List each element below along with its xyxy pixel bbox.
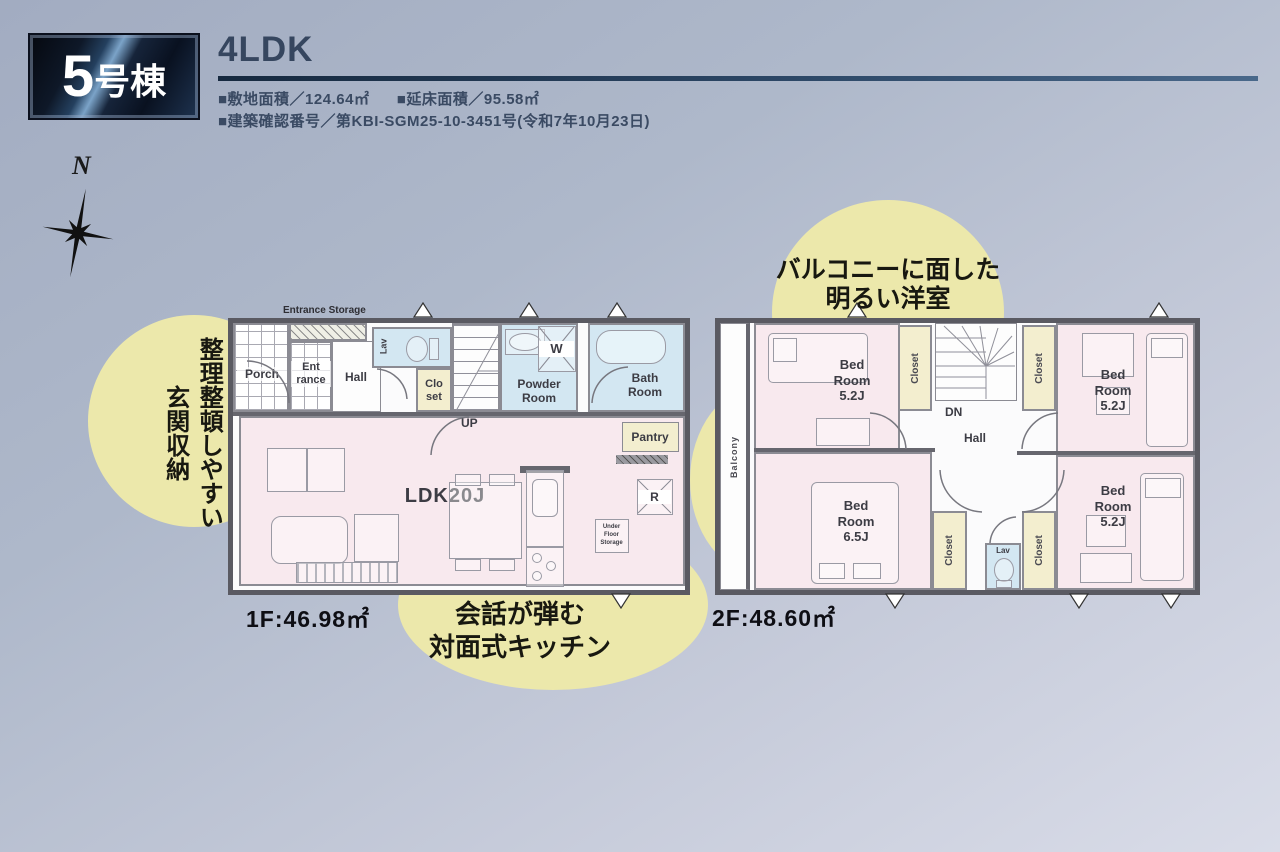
bedroom-3: Bed Room 6.5J <box>754 452 932 590</box>
door-arc-bedroom-2 <box>1020 411 1060 451</box>
entrance-storage-cabinet <box>289 323 367 341</box>
floor1-area-label: 1F:46.98㎡ <box>246 600 370 634</box>
toilet-icon-2f <box>994 558 1014 582</box>
toilet-tank-2f <box>996 580 1012 588</box>
toilet-icon-1f <box>406 336 428 362</box>
compass-icon: N <box>28 148 132 280</box>
stairs-1f <box>452 323 500 412</box>
bedroom-4: Bed Room 5.2J <box>1056 455 1195 590</box>
badge-suffix: 号棟 <box>94 64 166 100</box>
closet-1f: Clo set <box>416 368 452 412</box>
sofa <box>271 516 348 564</box>
section-arrow-icon <box>520 303 538 317</box>
stairs-2f <box>935 323 1017 401</box>
flyer-canvas: 5 号棟 4LDK ■敷地面積／124.64㎡ ■延床面積／95.58㎡ ■建築… <box>0 0 1280 852</box>
section-arrow-icon <box>608 303 626 317</box>
closet-2f-tl: Closet <box>898 325 932 411</box>
desk <box>816 418 870 446</box>
closet-2f-br: Closet <box>1022 511 1056 590</box>
stairs-up-label: UP <box>461 416 478 430</box>
lav-2f-label: Lav <box>987 546 1019 556</box>
hall-2f-label: Hall <box>964 431 986 445</box>
bedroom-2: Bed Room 5.2J <box>1056 323 1195 453</box>
pillow <box>1145 478 1181 498</box>
section-arrow-icon <box>1162 594 1180 608</box>
dining-chair <box>489 559 515 571</box>
spec-line-1: ■敷地面積／124.64㎡ ■延床面積／95.58㎡ <box>218 88 539 109</box>
section-arrow-icon <box>414 303 432 317</box>
powder-room-label: Powder Room <box>502 377 576 406</box>
refrigerator-space: R <box>637 479 673 515</box>
closet-2f-tr: Closet <box>1022 325 1056 411</box>
callout-kitchen: 会話が弾む 対面式キッチン <box>405 598 635 663</box>
pantry-shelf <box>616 455 668 464</box>
door-arc-lav-2f <box>988 515 1018 545</box>
pantry: Pantry <box>622 422 679 452</box>
plan-type-title: 4LDK <box>218 30 313 70</box>
bedroom-1-label: Bed Room 5.2J <box>812 357 892 404</box>
shelf <box>1080 553 1132 583</box>
powder-room: W Powder Room <box>500 323 578 412</box>
pillow <box>853 563 881 579</box>
header-divider <box>218 76 1258 81</box>
burner-icon <box>532 571 542 581</box>
bedroom-2-label: Bed Room 5.2J <box>1078 367 1148 414</box>
callout-balcony-rooms: バルコニーに面した 明るい洋室 <box>773 256 1003 314</box>
door-arc-lav-1f <box>375 367 409 401</box>
bedroom-3-label: Bed Room 6.5J <box>814 498 898 545</box>
callout-entrance-storage: 整理整頓しやすい 玄関収納 <box>158 330 225 535</box>
floor1-plan: Porch Ent rance Hall Lav Clo set <box>228 318 690 595</box>
floor2-plan: Balcony Bed Room 5.2J Closet <box>715 318 1200 595</box>
door-arc-bedroom-4 <box>1020 468 1066 514</box>
pillow <box>773 338 797 362</box>
closet-2f-bl: Closet <box>932 511 967 590</box>
vanity-sink-icon <box>509 333 541 351</box>
pillow <box>1151 338 1183 358</box>
armchair <box>354 514 399 562</box>
section-arrow-icon <box>1150 303 1168 317</box>
door-arc-bath <box>590 365 630 405</box>
closet-1f-label: Clo set <box>418 378 450 404</box>
closet-2f-br-label: Closet <box>1034 535 1045 566</box>
under-floor-storage: Under Floor Storage <box>595 519 629 553</box>
washer-space: W <box>538 326 576 372</box>
closet-2f-tl-label: Closet <box>910 353 921 384</box>
bathtub-icon <box>596 330 666 364</box>
pillow <box>819 563 845 579</box>
stove <box>526 547 564 587</box>
compass-n-label: N <box>71 151 92 180</box>
lav-2f: Lav <box>985 543 1021 590</box>
door-arc-porch <box>245 359 291 405</box>
lav-1f: Lav <box>372 327 452 368</box>
tv-board <box>267 448 345 492</box>
washer-label: W <box>539 341 574 357</box>
dining-table <box>449 482 522 559</box>
balcony-label: Balcony <box>729 435 739 477</box>
stairs-2f-lines <box>936 324 1015 399</box>
floor-area: ■延床面積／95.58㎡ <box>397 91 540 108</box>
floor2-area-label: 2F:48.60㎡ <box>712 599 836 633</box>
badge-number: 5 <box>62 48 94 106</box>
stairs-dn-label: DN <box>945 405 962 419</box>
kitchen-sink-icon <box>532 479 558 517</box>
section-arrow-icon <box>1070 594 1088 608</box>
balcony: Balcony <box>720 323 750 590</box>
site-area: ■敷地面積／124.64㎡ <box>218 91 369 108</box>
lav-1f-label: Lav <box>378 339 389 355</box>
stairs-1f-winder-lines <box>454 325 502 414</box>
building-number-badge: 5 号棟 <box>28 33 200 120</box>
dining-chair <box>489 474 515 486</box>
under-floor-storage-label: Under Floor Storage <box>596 524 627 547</box>
door-arc-bedroom-1 <box>868 411 908 451</box>
spec-line-2: ■建築確認番号／第KBI-SGM25-10-3451号(令和7年10月23日) <box>218 110 650 131</box>
section-arrow-icon <box>886 594 904 608</box>
toilet-tank-1f <box>429 338 439 360</box>
pantry-label: Pantry <box>623 430 677 444</box>
bedroom-4-label: Bed Room 5.2J <box>1078 483 1148 530</box>
hall-1f-label: Hall <box>335 370 377 384</box>
building-permit: ■建築確認番号／第KBI-SGM25-10-3451号(令和7年10月23日) <box>218 113 650 130</box>
refrigerator-label: R <box>638 490 671 504</box>
entrance-label: Ent rance <box>291 361 331 387</box>
dining-chair <box>455 474 481 486</box>
closet-2f-tr-label: Closet <box>1034 353 1045 384</box>
burner-icon <box>532 553 542 563</box>
entrance: Ent rance <box>289 341 332 412</box>
closet-2f-bl-label: Closet <box>944 535 955 566</box>
burner-icon <box>546 561 556 571</box>
entrance-storage-caption: Entrance Storage <box>283 305 366 317</box>
bed <box>1146 333 1188 447</box>
door-arc-bedroom-3 <box>938 468 984 514</box>
dining-chair <box>455 559 481 571</box>
rug <box>296 562 398 583</box>
kitchen-counter <box>526 470 564 547</box>
